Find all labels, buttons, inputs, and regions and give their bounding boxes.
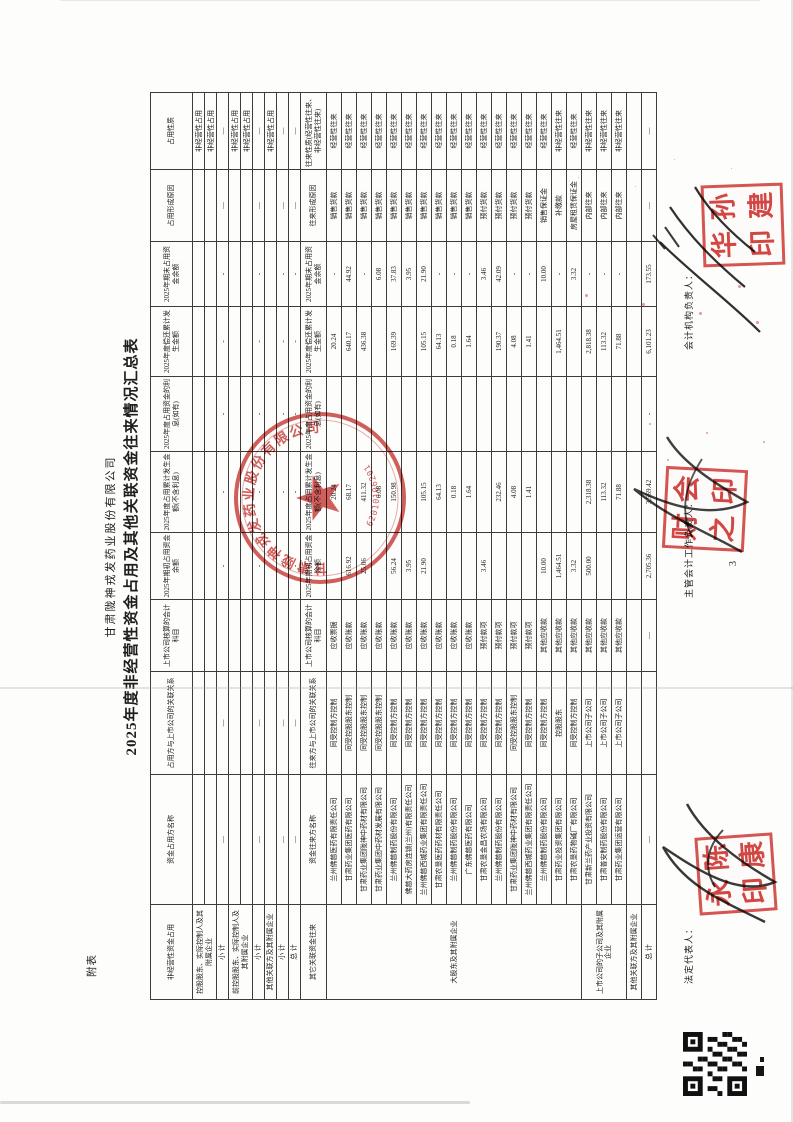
accounting-subject: 应收账款 [387, 600, 402, 672]
closing-balance [229, 242, 241, 307]
table-row: 兰州佛慈西城药业集团有限责任公司同受控制方控制预付款项1.411.41-预付货款… [522, 93, 537, 1000]
accounting-subject: 应收票据 [327, 600, 342, 672]
nature: 经营性往来 [447, 93, 462, 170]
formation-reason: 销售货款 [387, 170, 402, 242]
counterparty-name: 广东佛慈医药有限公司 [462, 775, 477, 905]
formation-reason: 销售保证金 [537, 170, 552, 242]
category-cell: 其他关联方及其附属企业 [627, 905, 642, 1000]
closing-balance: 3.32 [567, 242, 582, 307]
closing-balance: 10.00 [537, 242, 552, 307]
repaid-amount: 640.17 [342, 307, 357, 377]
closing-balance: - [522, 242, 537, 307]
interest [552, 377, 567, 452]
interest [507, 377, 522, 452]
nature: 非经营性占用 [241, 93, 253, 170]
formation-reason: 内部往来 [612, 170, 627, 242]
closing-balance: - [552, 242, 567, 307]
seal-star-icon [296, 475, 339, 521]
closing-balance: 21.90 [417, 242, 432, 307]
counterparty-name: — [277, 775, 289, 905]
interest [417, 377, 432, 452]
accounting-subject: 应收账款 [357, 600, 372, 672]
nature: 经营性往来 [357, 93, 372, 170]
opening-balance [205, 533, 217, 600]
closing-balance: 42.09 [492, 242, 507, 307]
accrued-amount: 1.64 [462, 452, 477, 533]
counterparty-name: 甘肃药业集团陇神中药材有限公司 [507, 775, 522, 905]
counterparty-name: 甘肃普安制药股份有限公司 [597, 775, 612, 905]
formation-reason: — [289, 170, 301, 242]
column-header: 2025年度偿还累计发生金额 [301, 307, 327, 377]
category-cell: 小 计 [277, 905, 289, 1000]
repaid-amount: - [217, 307, 229, 377]
nature: 非经营性往来 [552, 93, 567, 170]
accrued-amount [537, 452, 552, 533]
closing-balance: - [432, 242, 447, 307]
column-header: 非经营性资金占用 [151, 905, 193, 1000]
accrued-amount: 2,318.38 [582, 452, 597, 533]
nature: 经营性往来 [417, 93, 432, 170]
repaid-amount: 4.08 [507, 307, 522, 377]
accounting-subject: 其他应收款 [612, 600, 627, 672]
interest [537, 377, 552, 452]
table-row: 兰州佛慈制药股份有限公司同受控制方控制应收账款0.180.18-销售货款经营性往… [447, 93, 462, 1000]
counterparty-name [265, 775, 277, 905]
closing-balance: - [289, 242, 301, 307]
counterparty-name: 甘肃药业投资集团有限公司 [552, 775, 567, 905]
counterparty-name [193, 775, 205, 905]
scan-streak [0, 1101, 470, 1104]
chief-accountant-signature-scribble [612, 427, 762, 577]
counterparty-name: — [253, 775, 265, 905]
accrued-amount [477, 452, 492, 533]
interest [582, 377, 597, 452]
accounting-subject: 其他应收款 [597, 600, 612, 672]
table-row: 非经营性占用 [205, 93, 217, 1000]
column-header: 上市公司核算的会计科目 [301, 600, 327, 672]
opening-balance [597, 533, 612, 600]
column-header: 2025年期末占用资金余额 [301, 242, 327, 307]
closing-balance: - [357, 242, 372, 307]
repaid-amount [205, 307, 217, 377]
nature: — [217, 93, 229, 170]
opening-balance [462, 533, 477, 600]
opening-balance: 10.00 [537, 533, 552, 600]
nature: 经营性往来 [477, 93, 492, 170]
nature: 经营性往来 [342, 93, 357, 170]
formation-reason: 销售货款 [342, 170, 357, 242]
counterparty-name: 甘肃农垦药物碱厂有限公司 [567, 775, 582, 905]
counterparty-name: 兰州佛慈西城药业集团有限责任公司 [417, 775, 432, 905]
counterparty-name: 甘肃农垦医药药材有限责任公司 [432, 775, 447, 905]
accounting-subject [193, 600, 205, 672]
formation-reason: 销售货款 [402, 170, 417, 242]
accounting-subject [217, 600, 229, 672]
counterparty-name [205, 775, 217, 905]
legal-rep-signature-scribble [645, 792, 793, 942]
repaid-amount: 169.39 [387, 307, 402, 377]
repaid-amount: - [289, 307, 301, 377]
nature [627, 93, 642, 170]
counterparty-name: 兰州佛慈制药股份有限公司 [492, 775, 507, 905]
title-block: 甘肃陇神戎发药业股份有限公司 2025年度非经营性资金占用及其他关联资金往来情况… [102, 93, 141, 1000]
repaid-amount [372, 307, 387, 377]
interest [492, 377, 507, 452]
nature: — [277, 93, 289, 170]
repaid-amount: 0.18 [447, 307, 462, 377]
opening-balance: 500.00 [582, 533, 597, 600]
column-header: 2025年度占用资金的利息(如有) [151, 377, 193, 452]
company-name: 甘肃陇神戎发药业股份有限公司 [102, 93, 118, 1000]
accounting-subject: 预付款项 [522, 600, 537, 672]
repaid-amount: 436.38 [357, 307, 372, 377]
nature: 非经营性占用 [205, 93, 217, 170]
opening-balance [492, 533, 507, 600]
opening-balance [447, 533, 462, 600]
repaid-amount [477, 307, 492, 377]
closing-balance [241, 242, 253, 307]
closing-balance: 44.92 [342, 242, 357, 307]
scan-edge-shadow [60, 0, 760, 1]
table-row: 兰州佛慈制药股份有限公司同受控制方控制其他应收款10.0010.00销售保证金经… [537, 93, 552, 1000]
accrued-amount: 64.13 [432, 452, 447, 533]
opening-balance: 1,464.51 [552, 533, 567, 600]
counterparty-name: 甘肃药业集团陇神中药材有限公司 [357, 775, 372, 905]
table-row: 甘肃农垦金昌农场有限公司同受控制方控制预付款项3.463.46预付货款经营性往来 [477, 93, 492, 1000]
counterparty-name: — [217, 775, 229, 905]
formation-reason: 销售货款 [357, 170, 372, 242]
closing-balance [265, 242, 277, 307]
opening-balance [522, 533, 537, 600]
table-row: 兰州佛慈制药股份有限公司同受控制方控制预付款项232.46190.3742.09… [492, 93, 507, 1000]
repaid-amount: 2,818.38 [582, 307, 597, 377]
counterparty-name: — [289, 775, 301, 905]
opening-balance [193, 533, 205, 600]
table-row: 甘肃农垦药物碱厂有限公司同受控制方控制其他应收款3.323.32房屋租赁保证金经… [567, 93, 582, 1000]
closing-balance: - [447, 242, 462, 307]
accounting-subject: 预付款项 [492, 600, 507, 672]
accrued-amount: 232.46 [492, 452, 507, 533]
closing-balance: - [612, 242, 627, 307]
opening-balance: 3.46 [477, 533, 492, 600]
closing-balance: 6.08 [372, 242, 387, 307]
nature: 非经营性往来 [612, 93, 627, 170]
table-row: 甘肃普安制药股份有限公司上市公司子公司其他应收款113.32113.32-内部往… [597, 93, 612, 1000]
formation-reason: 销售货款 [327, 170, 342, 242]
category-cell: 总 计 [289, 905, 301, 1000]
repaid-amount: 113.32 [597, 307, 612, 377]
accounting-subject [277, 600, 289, 672]
formation-reason: 预付货款 [492, 170, 507, 242]
accounting-subject: 预付款项 [477, 600, 492, 672]
table-row: 甘肃农垦医药药材有限责任公司同受控制方控制应收账款64.1364.13-销售货款… [432, 93, 447, 1000]
repaid-amount: 1.64 [462, 307, 477, 377]
accounting-subject [241, 600, 253, 672]
closing-balance: - [597, 242, 612, 307]
opening-balance [507, 533, 522, 600]
nature: — [642, 93, 657, 170]
column-header: 2025年度偿还累计发生金额 [151, 307, 193, 377]
accounting-subject [205, 600, 217, 672]
counterparty-name: 甘肃新兰药产业投资有限公司 [582, 775, 597, 905]
counterparty-name: 兰州佛慈制药股份有限公司 [447, 775, 462, 905]
formation-reason [241, 170, 253, 242]
counterparty-name: 甘肃药业集团医药有限公司 [342, 775, 357, 905]
formation-reason: 补缴款 [552, 170, 567, 242]
repaid-amount [241, 307, 253, 377]
formation-reason: 销售货款 [432, 170, 447, 242]
closing-balance: - [582, 242, 597, 307]
accounting-subject: — [642, 600, 657, 672]
accounting-subject: 应收账款 [342, 600, 357, 672]
accounting-subject: 应收账款 [372, 600, 387, 672]
repaid-amount: 64.13 [432, 307, 447, 377]
repaid-amount: 105.15 [417, 307, 432, 377]
scan-streak [0, 687, 793, 689]
column-header: 往来形成原因 [301, 170, 327, 242]
nature: 非经营性占用 [265, 93, 277, 170]
column-header: 2025年度占用累计发生金额(不含利息) [151, 452, 193, 533]
interest [522, 377, 537, 452]
column-header: 其它关联资金往来 [301, 905, 327, 1000]
accrued-amount: 0.18 [447, 452, 462, 533]
accrued-amount [205, 452, 217, 533]
accrued-amount: 105.15 [417, 452, 432, 533]
column-header: 上市公司核算的会计科目 [151, 600, 193, 672]
nature: 经营性往来 [507, 93, 522, 170]
table-row: 兰州佛慈西城药业集团有限责任公司同受控制方控制应收账款21.90105.1510… [417, 93, 432, 1000]
formation-reason: 销售货款 [372, 170, 387, 242]
formation-reason [229, 170, 241, 242]
accounting-subject [229, 600, 241, 672]
attachment-label: 附表 [84, 954, 99, 977]
closing-balance: - [462, 242, 477, 307]
column-header: 占用性质 [151, 93, 193, 170]
scanned-document-page: { "page": { "corner_label": "附表", "page_… [0, 0, 793, 1122]
repaid-amount: 20.24 [327, 307, 342, 377]
counterparty-name [229, 775, 241, 905]
closing-balance: 37.83 [387, 242, 402, 307]
accounting-subject [289, 600, 301, 672]
repaid-amount: - [253, 307, 265, 377]
nature: — [253, 93, 265, 170]
formation-reason: 预付货款 [477, 170, 492, 242]
category-cell: 上市公司的子公司及其附属企业 [582, 905, 627, 1000]
interest [477, 377, 492, 452]
column-header: 往来性质(经营性往来、非经营性往来) [301, 93, 327, 170]
repaid-amount [537, 307, 552, 377]
accounting-subject: 应收账款 [447, 600, 462, 672]
counterparty-name: 甘肃药业集团运营有限公司 [612, 775, 627, 905]
column-header: 2025年期末占用资金余额 [151, 242, 193, 307]
accounting-subject [253, 600, 265, 672]
nature: 经营性往来 [492, 93, 507, 170]
accounting-subject: 预付款项 [507, 600, 522, 672]
formation-reason: 房屋租赁保证金 [567, 170, 582, 242]
interest [432, 377, 447, 452]
table-row: 广东佛慈医药有限公司同受控制方控制应收账款1.641.64-销售货款经营性往来 [462, 93, 477, 1000]
repaid-amount: 71.88 [612, 307, 627, 377]
repaid-amount [229, 307, 241, 377]
accounting-subject: 其他应收款 [537, 600, 552, 672]
formation-reason: — [253, 170, 265, 242]
table-row: 控股股东、实际控制人及其附属企业非经营性占用 [193, 93, 205, 1000]
interest [462, 377, 477, 452]
counterparty-name: 兰州佛慈西城药业集团有限责任公司 [522, 775, 537, 905]
accounting-subject [265, 600, 277, 672]
nature: 经营性往来 [327, 93, 342, 170]
accrued-amount [552, 452, 567, 533]
opening-balance: 3.32 [567, 533, 582, 600]
accounting-head-signature-scribble [635, 177, 785, 347]
column-header: 2025年期初占用资金余额 [151, 533, 193, 600]
nature: 经营性往来 [432, 93, 447, 170]
formation-reason [193, 170, 205, 242]
formation-reason: 预付货款 [507, 170, 522, 242]
formation-reason: 预付货款 [522, 170, 537, 242]
interest [205, 377, 217, 452]
repaid-amount: 190.37 [492, 307, 507, 377]
formation-reason: — [277, 170, 289, 242]
nature: 经营性往来 [537, 93, 552, 170]
header-row: 非经营性资金占用资金占用方名称占用方与上市公司的关联关系上市公司核算的会计科目2… [151, 93, 193, 1000]
accrued-amount: 113.32 [597, 452, 612, 533]
counterparty-name: 兰州佛慈医药有限责任公司 [327, 775, 342, 905]
opening-balance: 21.90 [417, 533, 432, 600]
counterparty-name: 佛慈大药房连锁(兰州)有限责任公司 [402, 775, 417, 905]
rotated-sheet: 附表 甘肃陇神戎发药业股份有限公司 2025年度非经营性资金占用及其他关联资金往… [0, 0, 793, 1122]
counterparty-name [241, 775, 253, 905]
category-cell: 前控股股东、实际控制人及其附属企业 [229, 905, 253, 1000]
closing-balance: - [217, 242, 229, 307]
scan-mark [756, 1066, 764, 1076]
accounting-subject: 其他应收款 [582, 600, 597, 672]
counterparty-name [627, 775, 642, 905]
nature: 经营性往来 [522, 93, 537, 170]
closing-balance: - [507, 242, 522, 307]
repaid-amount: - [277, 307, 289, 377]
accounting-subject: 其他应收款 [567, 600, 582, 672]
scan-mark [760, 1057, 764, 1062]
repaid-amount [567, 307, 582, 377]
closing-balance: - [253, 242, 265, 307]
column-header: 资金往来方名称 [301, 775, 327, 905]
nature: — [289, 93, 301, 170]
page-title: 2025年度非经营性资金占用及其他关联资金往来情况汇总表 [120, 93, 141, 1000]
nature: 非经营性占用 [229, 93, 241, 170]
repaid-amount: 1,464.51 [552, 307, 567, 377]
accounting-subject: 应收账款 [432, 600, 447, 672]
closing-balance [193, 242, 205, 307]
category-cell: 其他关联方及其附属企业 [265, 905, 277, 1000]
closing-balance: 3.46 [477, 242, 492, 307]
closing-balance [205, 242, 217, 307]
formation-reason: 销售货款 [462, 170, 477, 242]
accounting-subject: 应收账款 [402, 600, 417, 672]
accounting-subject: 应收账款 [417, 600, 432, 672]
accrued-amount: 1.41 [522, 452, 537, 533]
category-cell: 小 计 [217, 905, 229, 1000]
repaid-amount [265, 307, 277, 377]
column-header: 占用形成原因 [151, 170, 193, 242]
formation-reason: — [217, 170, 229, 242]
formation-reason: 销售货款 [447, 170, 462, 242]
nature: 非经营性往来 [582, 93, 597, 170]
interest [447, 377, 462, 452]
accrued-amount [567, 452, 582, 533]
repaid-amount: 1.41 [522, 307, 537, 377]
category-cell: 小 计 [253, 905, 265, 1000]
nature: 经营性往来 [567, 93, 582, 170]
accounting-subject: 其他应收款 [552, 600, 567, 672]
repaid-amount [402, 307, 417, 377]
counterparty-name: 兰州佛慈制药股份有限公司 [387, 775, 402, 905]
table-row: 上市公司的子公司及其附属企业甘肃新兰药产业投资有限公司上市公司子公司其他应收款5… [582, 93, 597, 1000]
repaid-amount [193, 307, 205, 377]
nature: 经营性往来 [387, 93, 402, 170]
column-header: 资金占用方名称 [151, 775, 193, 905]
interest [567, 377, 582, 452]
closing-balance: 3.95 [402, 242, 417, 307]
nature: 经营性往来 [402, 93, 417, 170]
interest [597, 377, 612, 452]
nature: 非经营性往来 [597, 93, 612, 170]
formation-reason [265, 170, 277, 242]
counterparty-name: 甘肃药业集团中药材发展有限公司 [372, 775, 387, 905]
formation-reason: 内部往来 [582, 170, 597, 242]
category-cell: 控股股东、实际控制人及其附属企业 [193, 905, 217, 1000]
closing-balance: - [277, 242, 289, 307]
nature: 非经营性占用 [193, 93, 205, 170]
category-cell: 大股东及其附属企业 [327, 905, 582, 1000]
table-row: 甘肃药业投资集团有限公司控股股东其他应收款1,464.511,464.51-补缴… [552, 93, 567, 1000]
qr-code [683, 1032, 747, 1096]
formation-reason: 销售货款 [417, 170, 432, 242]
formation-reason: 内部往来 [597, 170, 612, 242]
accounting-subject [627, 600, 642, 672]
counterparty-name: 甘肃农垦金昌农场有限公司 [477, 775, 492, 905]
formation-reason [205, 170, 217, 242]
nature: 经营性往来 [462, 93, 477, 170]
interest [193, 377, 205, 452]
accrued-amount: 4.08 [507, 452, 522, 533]
nature: 经营性往来 [372, 93, 387, 170]
accrued-amount [193, 452, 205, 533]
accounting-subject: 应收账款 [462, 600, 477, 672]
closing-balance: - [327, 242, 342, 307]
opening-balance [432, 533, 447, 600]
table-row: 甘肃药业集团陇神中药材有限公司同受控股股东控制预付款项4.084.08-预付货款… [507, 93, 522, 1000]
company-round-seal: 甘肃陇神戎发药业股份有限公司 6201010620103 [226, 404, 414, 592]
counterparty-name: 兰州佛慈制药股份有限公司 [537, 775, 552, 905]
